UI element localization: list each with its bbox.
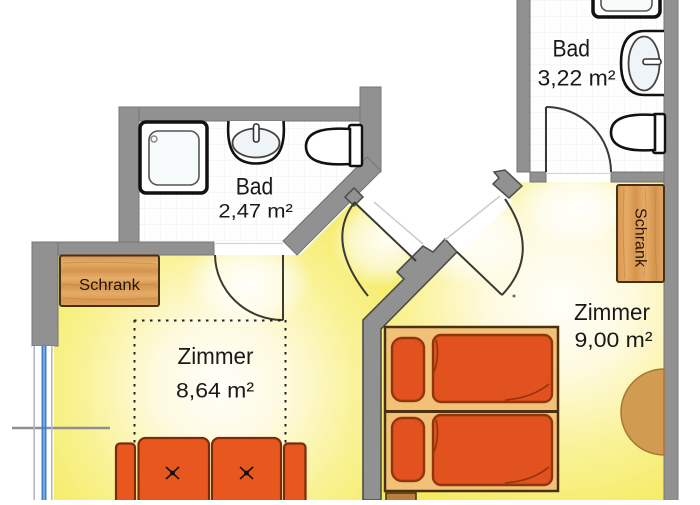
- svg-text:Bad: Bad: [553, 36, 591, 63]
- svg-text:Bad: Bad: [236, 174, 274, 201]
- svg-text:Zimmer: Zimmer: [178, 343, 254, 369]
- svg-text:8,64 m²: 8,64 m²: [176, 379, 254, 403]
- svg-text:3,22 m²: 3,22 m²: [538, 66, 616, 91]
- svg-text:Schrank: Schrank: [632, 208, 649, 267]
- svg-text:9,00 m²: 9,00 m²: [575, 328, 653, 352]
- svg-text:Schrank: Schrank: [79, 277, 140, 294]
- svg-text:2,47 m²: 2,47 m²: [218, 202, 293, 223]
- svg-text:Zimmer: Zimmer: [574, 299, 650, 325]
